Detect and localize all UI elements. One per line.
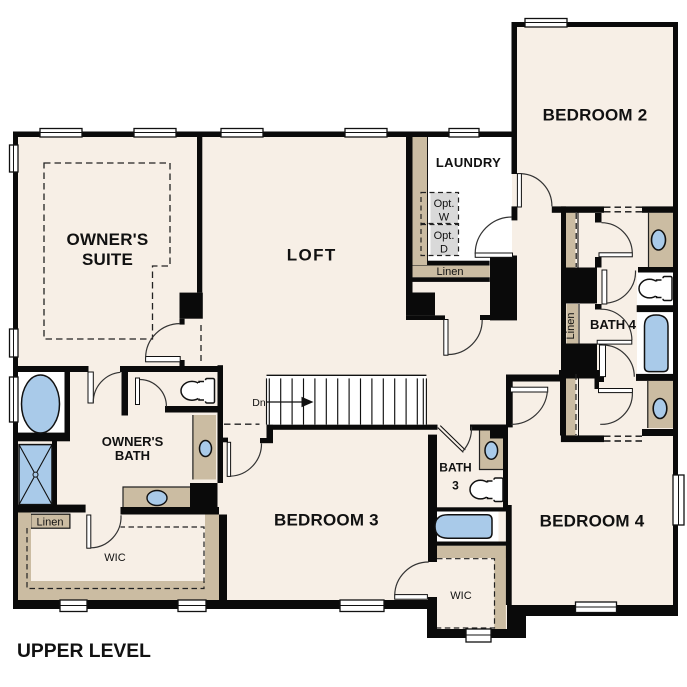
svg-text:WIC: WIC [104,552,125,564]
svg-text:OWNER'S: OWNER'S [67,230,149,249]
svg-text:BEDROOM 4: BEDROOM 4 [540,512,645,531]
svg-text:BATH: BATH [439,461,471,475]
svg-text:W: W [439,212,450,224]
svg-text:BATH: BATH [115,448,150,463]
svg-text:UPPER LEVEL: UPPER LEVEL [17,641,151,662]
svg-text:Linen: Linen [437,266,464,278]
svg-text:Opt.: Opt. [434,198,455,210]
svg-text:OWNER'S: OWNER'S [102,434,164,449]
svg-text:3: 3 [452,479,459,493]
svg-text:SUITE: SUITE [82,250,133,269]
svg-text:BEDROOM 3: BEDROOM 3 [274,511,379,530]
svg-text:WIC: WIC [450,590,471,602]
svg-text:BEDROOM 2: BEDROOM 2 [543,106,648,125]
svg-text:Opt.: Opt. [434,230,455,242]
svg-text:LOFT: LOFT [287,246,337,265]
svg-text:Dn: Dn [252,397,266,409]
svg-text:LAUNDRY: LAUNDRY [436,155,501,170]
svg-text:D: D [440,244,448,256]
svg-text:Linen: Linen [37,517,64,529]
svg-text:BATH 4: BATH 4 [590,317,637,332]
svg-text:Linen: Linen [565,313,577,340]
